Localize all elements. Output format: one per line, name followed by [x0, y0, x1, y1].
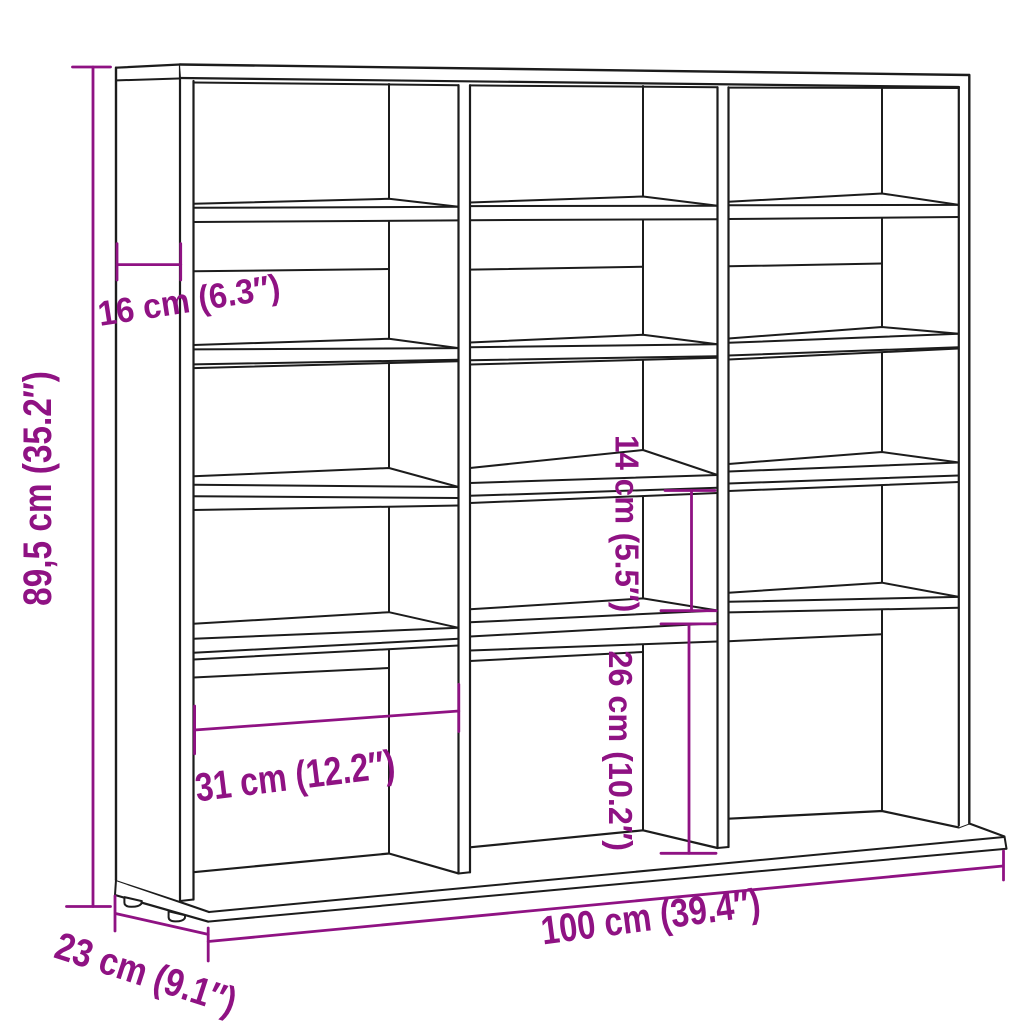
svg-text:14 cm (5.5″): 14 cm (5.5″)	[608, 435, 645, 612]
svg-text:26 cm (10.2″): 26 cm (10.2″)	[602, 651, 639, 852]
svg-text:89,5 cm (35.2″): 89,5 cm (35.2″)	[15, 371, 60, 606]
